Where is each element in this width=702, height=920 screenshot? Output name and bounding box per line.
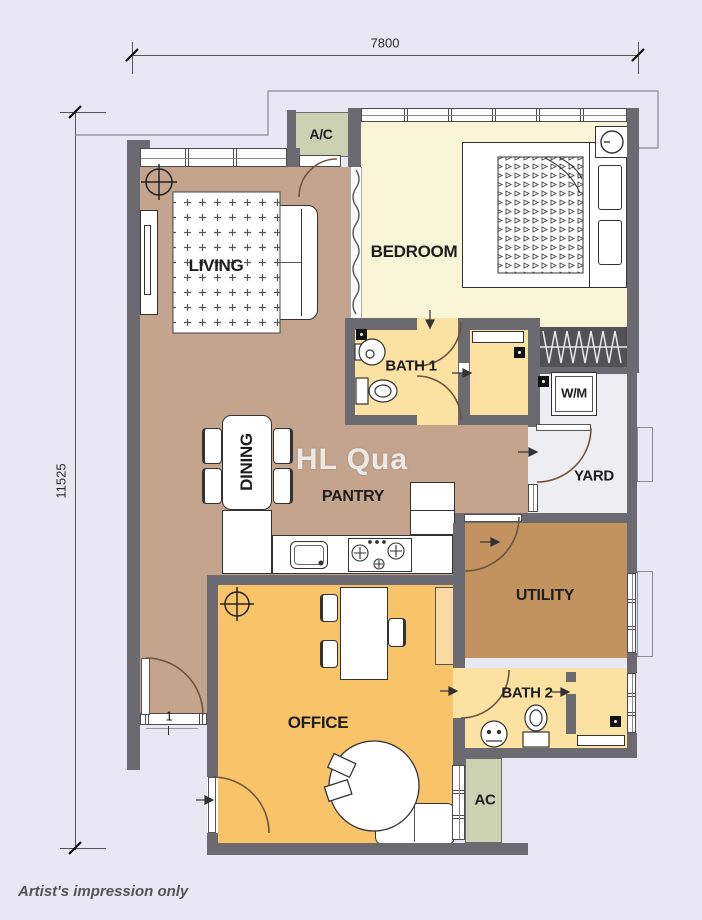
room-label-wm: W/M bbox=[561, 386, 587, 401]
bedroom-ac-symbol bbox=[601, 131, 623, 153]
room-label-yard: YARD bbox=[574, 468, 614, 485]
dimension-label-top: 7800 bbox=[371, 36, 400, 51]
footnote: Artist's impression only bbox=[18, 883, 188, 900]
room-label-dining: DINING bbox=[237, 433, 257, 491]
room-label-living: LIVING bbox=[189, 256, 244, 276]
partition-squiggle bbox=[353, 170, 359, 314]
bath1-basin bbox=[355, 339, 385, 365]
slab-outline bbox=[75, 91, 658, 148]
door-arc-bath1-bottom bbox=[417, 376, 461, 420]
room-label-bath1: BATH 1 bbox=[385, 358, 436, 375]
bath1-toilet bbox=[356, 378, 397, 404]
floor-plan: LIVING BEDROOM BATH 1 DINING PANTRY YARD… bbox=[0, 0, 702, 920]
room-label-bath2: BATH 2 bbox=[501, 685, 552, 702]
dimension-label-left: 11525 bbox=[54, 463, 69, 498]
label-ac-lower: AC bbox=[474, 792, 495, 809]
crosshair-symbol-living bbox=[141, 164, 177, 200]
room-label-utility: UTILITY bbox=[516, 587, 574, 605]
office-daybed bbox=[324, 741, 419, 831]
door-arc-office bbox=[213, 777, 269, 833]
wardrobe-hatch bbox=[540, 331, 627, 363]
bed-blanket-pattern bbox=[498, 157, 583, 273]
room-label-pantry: PANTRY bbox=[322, 488, 384, 506]
crosshair-symbol-office bbox=[220, 587, 254, 621]
watermark: HL Qua bbox=[296, 443, 408, 477]
bath2-toilet bbox=[523, 705, 549, 747]
door-arc-ac bbox=[299, 159, 337, 197]
stove-burners bbox=[352, 541, 404, 569]
entry-door-number-tick bbox=[168, 726, 169, 735]
sink-faucet bbox=[319, 561, 324, 566]
room-label-bedroom: BEDROOM bbox=[371, 242, 458, 262]
bath2-basin bbox=[481, 721, 507, 747]
room-label-office: OFFICE bbox=[288, 713, 349, 733]
label-ac-upper: A/C bbox=[309, 126, 332, 142]
door-arc-entry bbox=[146, 658, 203, 715]
entry-door-number: 1 bbox=[166, 709, 173, 724]
